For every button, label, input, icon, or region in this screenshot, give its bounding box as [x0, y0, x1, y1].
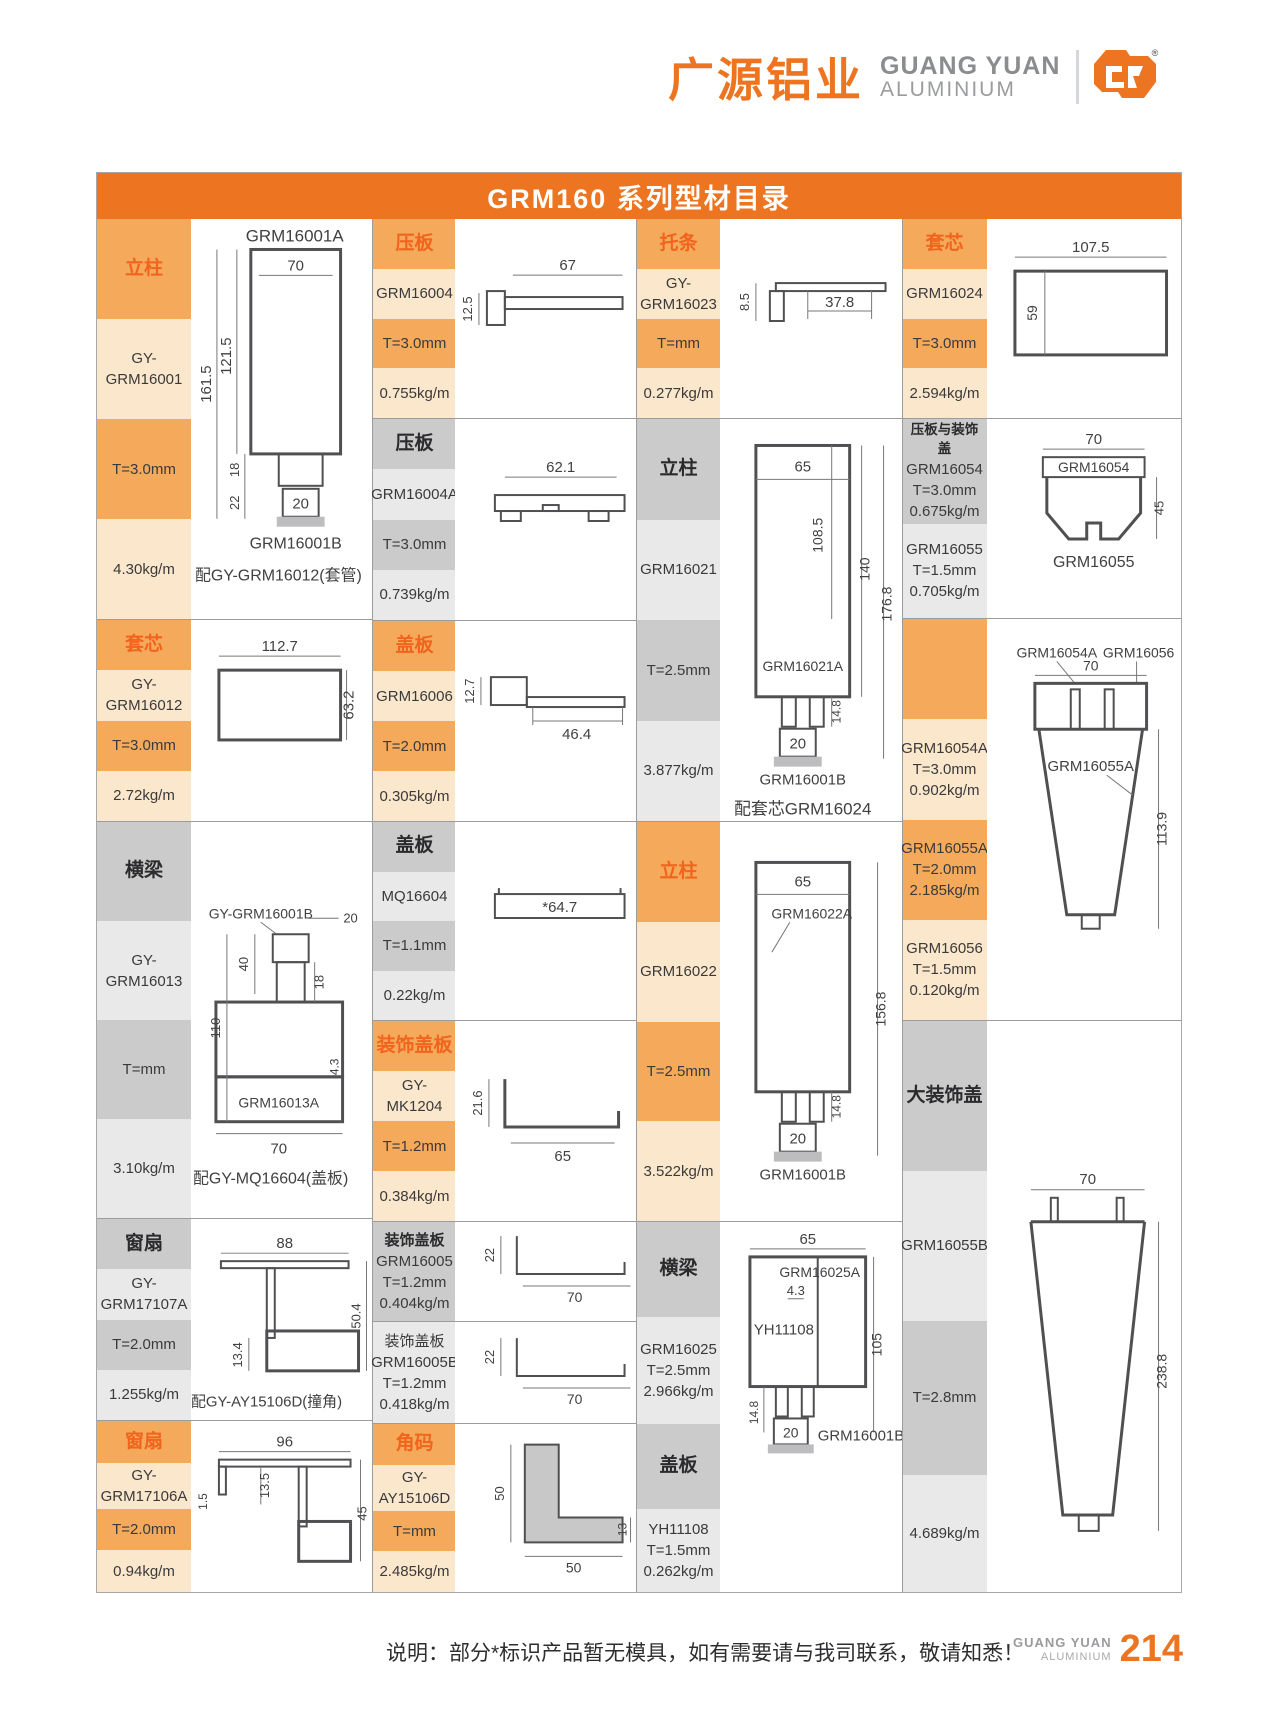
profile-drawing: 22 70	[455, 1222, 636, 1321]
catalog-table: GRM160 系列型材目录 立柱 GY-GRM16001 T=3.0mm 4.3…	[96, 172, 1182, 1593]
spec-labels: 立柱 GRM16022 T=2.5mm 3.522kg/m	[637, 822, 720, 1221]
dim-label: 20	[783, 1424, 799, 1440]
dim-label: 22	[482, 1248, 497, 1262]
part-label: GRM16001A	[246, 227, 345, 246]
thickness-cell: T=mm	[97, 1020, 191, 1119]
dim-label: 14.8	[747, 1401, 761, 1425]
part-label: GRM16013A	[238, 1095, 319, 1111]
category-cell: 窗扇	[97, 1219, 191, 1269]
column-group-1: 立柱 GY-GRM16001 T=3.0mm 4.30kg/m	[97, 219, 373, 1592]
profile-outline	[219, 1452, 361, 1562]
brand-divider	[1076, 50, 1079, 104]
profile-outline	[489, 1079, 619, 1143]
brand-logo-icon: ®	[1091, 47, 1161, 107]
section-zhuangshigaiban-grm16005: 装饰盖板 GRM16005 T=1.2mm 0.404kg/m 22	[373, 1222, 636, 1322]
dim-label: 65	[794, 458, 811, 475]
dim-label: 65	[799, 1231, 816, 1248]
weight-cell: 0.277kg/m	[637, 368, 720, 418]
profile-drawing: 21.6 65	[455, 1021, 636, 1221]
section-lizhu-grm16021: 立柱 GRM16021 T=2.5mm 3.877kg/m	[637, 419, 902, 822]
spec-cell: 压板与装饰盖 GRM16054 T=3.0mm 0.675kg/m	[903, 419, 987, 524]
category-cell: 立柱	[97, 219, 191, 319]
dim-label: 4.3	[328, 1058, 342, 1075]
spec-labels: 装饰盖板 GY-MK1204 T=1.2mm 0.384kg/m	[373, 1021, 455, 1221]
profile-outline	[501, 1236, 631, 1286]
dim-label: 59	[1023, 305, 1039, 321]
spec-labels: 套芯 GRM16024 T=3.0mm 2.594kg/m	[903, 219, 987, 418]
dim-label: 62.1	[547, 459, 576, 476]
column-group-2: 压板 GRM16004 T=3.0mm 0.755kg/m 67	[373, 219, 637, 1592]
profile-drawing: 112.7 63.2	[191, 620, 372, 821]
profile-drawing: *64.7	[455, 822, 636, 1020]
section-gaiban-grm16006: 盖板 GRM16006 T=2.0mm 0.305kg/m	[373, 621, 636, 822]
catalog-body: 立柱 GY-GRM16001 T=3.0mm 4.30kg/m	[97, 219, 1181, 1592]
category-cell: 横梁	[637, 1222, 720, 1317]
part-label: YH11108	[754, 1322, 814, 1339]
section-jiaoma-gy-ay15106d: 角码 GY-AY15106D T=mm 2.485kg/m 50	[373, 1424, 636, 1592]
dim-label: 105	[869, 1333, 885, 1357]
part-label: GRM16001B	[760, 1167, 846, 1184]
profile-outline	[217, 249, 341, 526]
code-cell: GY-GRM17106A	[97, 1463, 191, 1509]
dim-label: 70	[567, 1391, 583, 1407]
profile-drawing: 96 13.5 1.5 45	[191, 1421, 372, 1592]
part-label: GRM16025A	[779, 1264, 860, 1280]
dim-label: 238.8	[1153, 1354, 1169, 1389]
dim-label: 50	[566, 1559, 582, 1575]
spec-cell: YH11108 T=1.5mm 0.262kg/m	[637, 1509, 720, 1592]
column-group-4: 套芯 GRM16024 T=3.0mm 2.594kg/m 107.5 59	[903, 219, 1181, 1592]
spec-labels: 套芯 GY-GRM16012 T=3.0mm 2.72kg/m	[97, 620, 191, 821]
section-hengliang-gy-grm16013: 横梁 GY-GRM16013 T=mm 3.10kg/m	[97, 822, 372, 1219]
svg-text:®: ®	[1152, 48, 1159, 58]
profile-outline	[481, 677, 625, 725]
profile-outline	[495, 477, 625, 521]
dim-label: 21.6	[470, 1090, 485, 1115]
dim-label: 50.4	[349, 1303, 364, 1328]
section-zhuangshigaiban-gy-mk1204: 装饰盖板 GY-MK1204 T=1.2mm 0.384kg/m 21.6 65	[373, 1021, 636, 1222]
profile-drawing: GY-GRM16001B 20 40 18 110 4.3 GRM16013A …	[191, 822, 372, 1218]
spacer-cell	[903, 619, 987, 719]
profile-drawing: 12.7 46.4	[455, 621, 636, 821]
profile-drawing: GRM16001A 70 121.5 161.5 18 22 20 GRM160…	[191, 219, 372, 619]
part-label: GRM16022A	[771, 905, 852, 921]
dim-label: 14.8	[830, 700, 844, 724]
spec-cell: 装饰盖板 GRM16005B T=1.2mm 0.418kg/m	[373, 1322, 455, 1423]
thickness-cell: T=3.0mm	[373, 520, 455, 570]
weight-cell: 3.10kg/m	[97, 1119, 191, 1218]
spec-labels: 压板与装饰盖 GRM16054 T=3.0mm 0.675kg/m GRM160…	[903, 419, 987, 618]
profile-outline	[511, 1445, 631, 1557]
dim-label: 1.5	[196, 1493, 210, 1510]
part-label: GRM16001B	[760, 772, 846, 789]
profile-drawing: 8.5 37.8	[720, 219, 902, 418]
code-cell: GY-GRM16023	[637, 269, 720, 319]
dim-label: 96	[276, 1434, 293, 1451]
spec-labels: 横梁 GY-GRM16013 T=mm 3.10kg/m	[97, 822, 191, 1218]
part-label: GRM16001B	[818, 1427, 902, 1444]
code-cell: GY-GRM17107A	[97, 1269, 191, 1319]
part-label: GRM16056	[1102, 644, 1174, 660]
section-gaiban-mq16604: 盖板 MQ16604 T=1.1mm 0.22kg/m *64.7	[373, 822, 636, 1021]
dim-label: 156.8	[873, 991, 889, 1026]
dim-label: 12.7	[462, 678, 477, 703]
section-dazhuangshigai-grm16055B: 大装饰盖 GRM16055B T=2.8mm 4.689kg/m	[903, 1021, 1181, 1592]
code-cell: GRM16006	[373, 671, 455, 721]
profile-outline	[501, 1338, 631, 1388]
weight-cell: 0.755kg/m	[373, 368, 455, 418]
section-chuangshan-gy-grm17107A: 窗扇 GY-GRM17107A T=2.0mm 1.255kg/m	[97, 1219, 372, 1421]
category-cell: 压板	[373, 419, 455, 469]
spec-labels: 装饰盖板 GRM16005 T=1.2mm 0.404kg/m	[373, 1222, 455, 1321]
category-cell: 立柱	[637, 419, 720, 520]
profile-drawing: 70 GRM16054 45 GRM16055	[987, 419, 1181, 618]
pairing-note: 配GY-AY15106D(撞角)	[191, 1393, 342, 1411]
section-taoxin-gy-grm16012: 套芯 GY-GRM16012 T=3.0mm 2.72kg/m 112.7 63…	[97, 620, 372, 822]
weight-cell: 2.72kg/m	[97, 771, 191, 821]
section-grm16054A-grm16056: GRM16054A T=3.0mm 0.902kg/m GRM16055A T=…	[903, 619, 1181, 1021]
spec-labels: 盖板 MQ16604 T=1.1mm 0.22kg/m	[373, 822, 455, 1020]
catalog-title: GRM160 系列型材目录	[97, 173, 1181, 219]
dim-label: 20	[292, 496, 309, 513]
dim-label: 70	[1079, 1171, 1096, 1188]
weight-cell: 0.22kg/m	[373, 971, 455, 1021]
category-cell: 压板	[373, 219, 455, 269]
dim-label: 113.9	[1153, 812, 1169, 846]
dim-label: 37.8	[825, 294, 854, 311]
category-cell: 托条	[637, 219, 720, 269]
profile-drawing: 62.1	[455, 419, 636, 620]
dim-label: 13	[616, 1522, 630, 1536]
dim-label: 14.8	[830, 1095, 844, 1119]
spec-cell: 装饰盖板 GRM16005 T=1.2mm 0.404kg/m	[373, 1222, 455, 1321]
dim-label: 20	[343, 910, 357, 925]
thickness-cell: T=mm	[637, 319, 720, 369]
profile-drawing: GRM16054A GRM16056 70 GRM16055A 113.9	[987, 619, 1181, 1020]
section-tuotiao-gy-grm16023: 托条 GY-GRM16023 T=mm 0.277kg/m	[637, 219, 902, 419]
thickness-cell: T=2.5mm	[637, 1022, 720, 1122]
weight-cell: 0.305kg/m	[373, 771, 455, 821]
dim-label: 45	[355, 1506, 370, 1520]
code-cell: MQ16604	[373, 872, 455, 922]
spec-cell: GRM16055 T=1.5mm 0.705kg/m	[903, 524, 987, 618]
profile-drawing: 50 50 13	[455, 1424, 636, 1592]
code-cell: GRM16055B	[903, 1171, 987, 1321]
dim-label: 121.5	[218, 337, 235, 374]
weight-cell: 0.384kg/m	[373, 1171, 455, 1221]
pairing-note: 配GY-MQ16604(盖板)	[193, 1170, 348, 1188]
dim-label: 63.2	[341, 691, 358, 720]
spec-cell: GRM16056 T=1.5mm 0.120kg/m	[903, 920, 987, 1020]
dim-label: 20	[789, 1131, 806, 1148]
thickness-cell: T=3.0mm	[97, 721, 191, 771]
spec-labels: 压板 GRM16004 T=3.0mm 0.755kg/m	[373, 219, 455, 418]
section-lizhu-gy-grm16001: 立柱 GY-GRM16001 T=3.0mm 4.30kg/m	[97, 219, 372, 620]
section-yaban-grm16004: 压板 GRM16004 T=3.0mm 0.755kg/m 67	[373, 219, 636, 419]
code-cell: GRM16022	[637, 922, 720, 1022]
dim-label: 70	[1085, 431, 1102, 448]
category-cell: 套芯	[97, 620, 191, 670]
section-hengliang-grm16025: 横梁 GRM16025 T=2.5mm 2.966kg/m 盖板 YH11108…	[637, 1222, 902, 1592]
profile-drawing: 65 108.5 140 176.8 GRM16021A 14.8 20 GRM…	[720, 419, 902, 821]
footer-brand: GUANG YUAN ALUMINIUM	[1013, 1636, 1112, 1662]
dim-label: 45	[1151, 501, 1166, 515]
profile-outline	[1030, 1190, 1158, 1531]
code-cell: GRM16024	[903, 269, 987, 319]
spec-labels: 大装饰盖 GRM16055B T=2.8mm 4.689kg/m	[903, 1021, 987, 1592]
dim-label: 22	[482, 1350, 497, 1364]
spec-labels: 托条 GY-GRM16023 T=mm 0.277kg/m	[637, 219, 720, 418]
dim-label: 67	[560, 257, 577, 274]
dim-label: 46.4	[563, 726, 592, 743]
code-cell: GY-GRM16012	[97, 670, 191, 720]
profile-drawing: 65 GRM16025A 4.3 YH11108 105 14.8 20 GRM…	[720, 1222, 902, 1592]
dim-label: 65	[794, 873, 811, 890]
category-cell: 盖板	[373, 822, 455, 872]
thickness-cell: T=2.8mm	[903, 1321, 987, 1476]
profile-outline	[479, 275, 623, 325]
code-cell: GY-MK1204	[373, 1071, 455, 1121]
code-cell: GY-GRM16001	[97, 319, 191, 419]
dim-label: 70	[270, 1141, 287, 1158]
pairing-note: 配套芯GRM16024	[734, 799, 871, 818]
dim-label: *64.7	[543, 899, 578, 916]
category-cell: 立柱	[637, 822, 720, 922]
category-cell: 窗扇	[97, 1421, 191, 1463]
dim-label: 112.7	[262, 638, 298, 655]
dim-label: 88	[276, 1235, 293, 1252]
part-label: GRM16001B	[250, 536, 342, 553]
weight-cell: 4.30kg/m	[97, 519, 191, 619]
category-cell: 大装饰盖	[903, 1021, 987, 1171]
thickness-cell: T=3.0mm	[373, 319, 455, 369]
category-cell: 装饰盖板	[373, 1021, 455, 1071]
profile-drawing: 22 70	[455, 1322, 636, 1423]
section-taoxin-grm16024: 套芯 GRM16024 T=3.0mm 2.594kg/m 107.5 59	[903, 219, 1181, 419]
part-label: GRM16055A	[1047, 758, 1133, 775]
weight-cell: 3.522kg/m	[637, 1121, 720, 1221]
section-yaban-zhuangshigai: 压板与装饰盖 GRM16054 T=3.0mm 0.675kg/m GRM160…	[903, 419, 1181, 619]
dim-label: 110	[208, 1018, 223, 1039]
section-zhuangshigaiban-grm16005B: 装饰盖板 GRM16005B T=1.2mm 0.418kg/m 22	[373, 1322, 636, 1424]
spec-labels: 窗扇 GY-GRM17107A T=2.0mm 1.255kg/m	[97, 1219, 191, 1420]
profile-drawing: 70 238.8	[987, 1021, 1181, 1592]
dim-label: 70	[1082, 657, 1098, 673]
dim-label: 50	[492, 1486, 507, 1500]
part-label: GY-GRM16001B	[209, 905, 313, 921]
dim-label: 13.5	[257, 1473, 272, 1498]
weight-cell: 1.255kg/m	[97, 1370, 191, 1420]
profile-drawing: 67 12.5	[455, 219, 636, 418]
weight-cell: 0.739kg/m	[373, 570, 455, 620]
category-cell: 盖板	[637, 1424, 720, 1510]
dim-label: 4.3	[787, 1283, 805, 1298]
weight-cell: 0.94kg/m	[97, 1550, 191, 1592]
spec-cell: GRM16054A T=3.0mm 0.902kg/m	[903, 719, 987, 819]
spec-cell: GRM16025 T=2.5mm 2.966kg/m	[637, 1317, 720, 1424]
dim-label: 12.5	[460, 296, 475, 321]
footer-note: 说明：部分*标识产品暂无模具，如有需要请与我司联系，敬请知悉！	[386, 1637, 1024, 1667]
thickness-cell: T=2.5mm	[637, 620, 720, 721]
dim-label: 107.5	[1072, 239, 1109, 256]
code-cell: GRM16021	[637, 520, 720, 621]
code-cell: GRM16004	[373, 269, 455, 319]
profile-outline	[756, 283, 886, 321]
thickness-cell: T=1.1mm	[373, 921, 455, 971]
category-cell: 套芯	[903, 219, 987, 269]
spec-labels: 盖板 GRM16006 T=2.0mm 0.305kg/m	[373, 621, 455, 821]
code-cell: GRM16004A	[373, 469, 455, 519]
spec-labels: 立柱 GRM16021 T=2.5mm 3.877kg/m	[637, 419, 720, 821]
thickness-cell: T=2.0mm	[97, 1509, 191, 1551]
spec-labels: 角码 GY-AY15106D T=mm 2.485kg/m	[373, 1424, 455, 1592]
page-number: 214	[1120, 1628, 1183, 1671]
dim-label: 40	[236, 957, 251, 971]
category-cell: 横梁	[97, 822, 191, 921]
profile-drawing: 65 GRM16022A 156.8 14.8 20 GRM16001B	[720, 822, 902, 1221]
dim-label: 8.5	[737, 293, 752, 311]
spec-labels: 压板 GRM16004A T=3.0mm 0.739kg/m	[373, 419, 455, 620]
profile-drawing: 88 13.4 50.4 配GY-AY15106D(撞角)	[191, 1219, 372, 1420]
brand-name-cn: 广源铝业	[668, 44, 864, 110]
dim-label: 18	[227, 463, 242, 477]
dim-label: 22	[227, 496, 242, 510]
code-cell: GY-AY15106D	[373, 1465, 455, 1511]
dim-label: 18	[312, 975, 327, 989]
spec-labels: 装饰盖板 GRM16005B T=1.2mm 0.418kg/m	[373, 1322, 455, 1423]
code-cell: GY-GRM16013	[97, 921, 191, 1020]
weight-cell: 3.877kg/m	[637, 721, 720, 822]
profile-outline	[756, 445, 884, 766]
weight-cell: 2.485kg/m	[373, 1551, 455, 1592]
spec-labels: 窗扇 GY-GRM17106A T=2.0mm 0.94kg/m	[97, 1421, 191, 1592]
thickness-cell: T=1.2mm	[373, 1121, 455, 1171]
thickness-cell: T=2.0mm	[373, 721, 455, 771]
dim-label: 176.8	[879, 586, 895, 621]
column-group-3: 托条 GY-GRM16023 T=mm 0.277kg/m	[637, 219, 903, 1592]
spec-labels: 立柱 GY-GRM16001 T=3.0mm 4.30kg/m	[97, 219, 191, 619]
dim-label: 140	[857, 557, 873, 581]
dim-label: 70	[567, 1289, 583, 1305]
weight-cell: 2.594kg/m	[903, 368, 987, 418]
profile-drawing: 107.5 59	[987, 219, 1181, 418]
category-cell: 盖板	[373, 621, 455, 671]
profile-outline	[1034, 661, 1158, 928]
profile-outline	[219, 656, 347, 740]
part-label: GRM16055	[1052, 554, 1134, 571]
dim-label: 20	[789, 736, 806, 753]
thickness-cell: T=3.0mm	[903, 319, 987, 369]
brand-name-en: GUANG YUAN ALUMINIUM	[880, 53, 1060, 101]
dim-label: 13.4	[230, 1342, 245, 1367]
section-lizhu-grm16022: 立柱 GRM16022 T=2.5mm 3.522kg/m	[637, 822, 902, 1222]
category-cell: 角码	[373, 1424, 455, 1465]
weight-cell: 4.689kg/m	[903, 1475, 987, 1592]
spec-labels: 横梁 GRM16025 T=2.5mm 2.966kg/m 盖板 YH11108…	[637, 1222, 720, 1592]
dim-label: 108.5	[810, 518, 826, 553]
spec-cell: GRM16055A T=2.0mm 2.185kg/m	[903, 820, 987, 920]
brand-header: 广源铝业 GUANG YUAN ALUMINIUM ®	[668, 44, 1161, 110]
thickness-cell: T=3.0mm	[97, 419, 191, 519]
section-chuangshan-gy-grm17106A: 窗扇 GY-GRM17106A T=2.0mm 0.94kg/m	[97, 1421, 372, 1592]
thickness-cell: T=mm	[373, 1511, 455, 1552]
page-number-block: GUANG YUAN ALUMINIUM 214	[1013, 1628, 1183, 1671]
part-label: GRM16021A	[762, 658, 843, 674]
spec-labels: GRM16054A T=3.0mm 0.902kg/m GRM16055A T=…	[903, 619, 987, 1020]
thickness-cell: T=2.0mm	[97, 1320, 191, 1370]
section-yaban-grm16004A: 压板 GRM16004A T=3.0mm 0.739kg/m	[373, 419, 636, 621]
dim-label: 70	[287, 257, 304, 274]
dim-label: 161.5	[198, 365, 215, 402]
part-label: GRM16054	[1058, 459, 1130, 475]
pairing-note: 配GY-GRM16012(套管)	[195, 567, 362, 585]
dim-label: 65	[555, 1148, 572, 1165]
